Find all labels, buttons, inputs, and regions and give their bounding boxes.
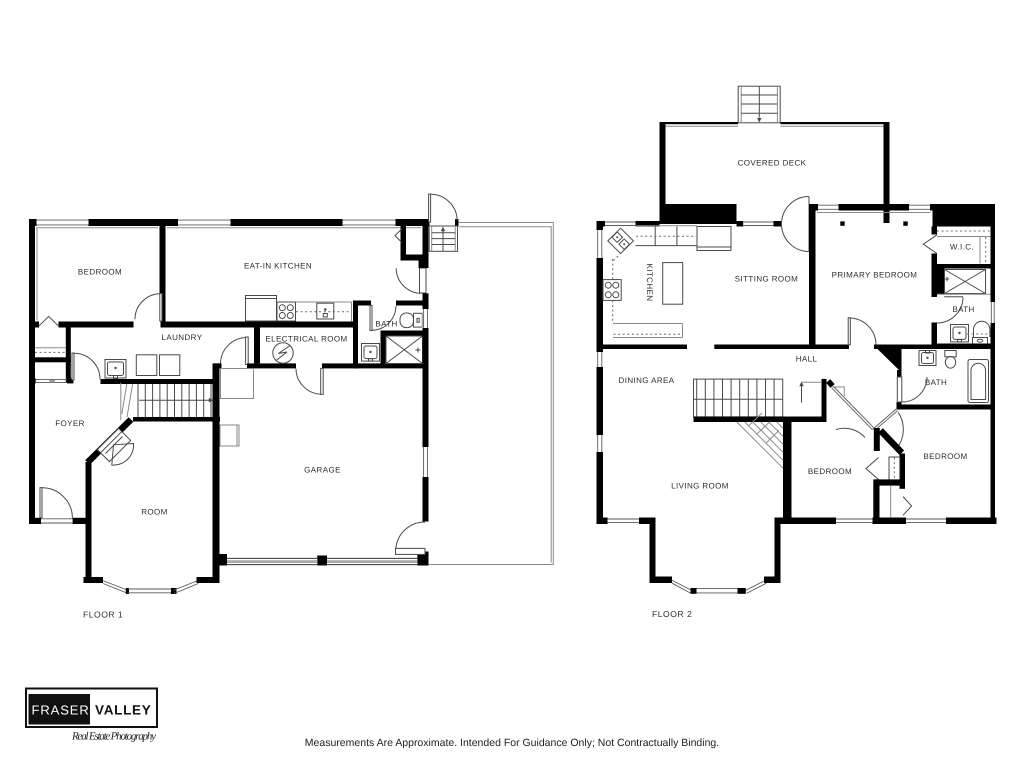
svg-text:LIVING ROOM: LIVING ROOM bbox=[671, 482, 729, 491]
svg-text:LAUNDRY: LAUNDRY bbox=[162, 333, 203, 342]
svg-text:BEDROOM: BEDROOM bbox=[923, 452, 967, 461]
svg-text:GARAGE: GARAGE bbox=[304, 466, 341, 475]
svg-text:KITCHEN: KITCHEN bbox=[645, 264, 654, 302]
svg-text:FLOOR 1: FLOOR 1 bbox=[83, 610, 123, 620]
svg-text:BATH: BATH bbox=[952, 305, 974, 314]
svg-text:PRIMARY BEDROOM: PRIMARY BEDROOM bbox=[832, 271, 918, 280]
svg-text:BEDROOM: BEDROOM bbox=[78, 268, 122, 277]
svg-text:Measurements Are Approximate.: Measurements Are Approximate. Intended F… bbox=[305, 737, 719, 749]
svg-text:ELECTRICAL ROOM: ELECTRICAL ROOM bbox=[265, 335, 347, 344]
svg-text:VALLEY: VALLEY bbox=[95, 703, 151, 718]
svg-text:FRASER: FRASER bbox=[32, 703, 90, 718]
svg-text:BATH: BATH bbox=[925, 378, 947, 387]
svg-text:COVERED DECK: COVERED DECK bbox=[738, 159, 807, 168]
svg-text:FLOOR 2: FLOOR 2 bbox=[652, 609, 692, 619]
svg-text:DINING AREA: DINING AREA bbox=[619, 376, 675, 385]
svg-text:BATH: BATH bbox=[375, 320, 397, 329]
svg-text:Real Estate Photography: Real Estate Photography bbox=[71, 731, 156, 743]
svg-text:W.I.C.: W.I.C. bbox=[950, 243, 974, 252]
svg-text:SITTING ROOM: SITTING ROOM bbox=[735, 275, 798, 284]
svg-text:FOYER: FOYER bbox=[55, 419, 85, 428]
svg-text:ROOM: ROOM bbox=[141, 508, 168, 517]
svg-text:BEDROOM: BEDROOM bbox=[808, 467, 852, 476]
svg-text:EAT-IN KITCHEN: EAT-IN KITCHEN bbox=[244, 262, 312, 271]
svg-text:HALL: HALL bbox=[796, 355, 818, 364]
